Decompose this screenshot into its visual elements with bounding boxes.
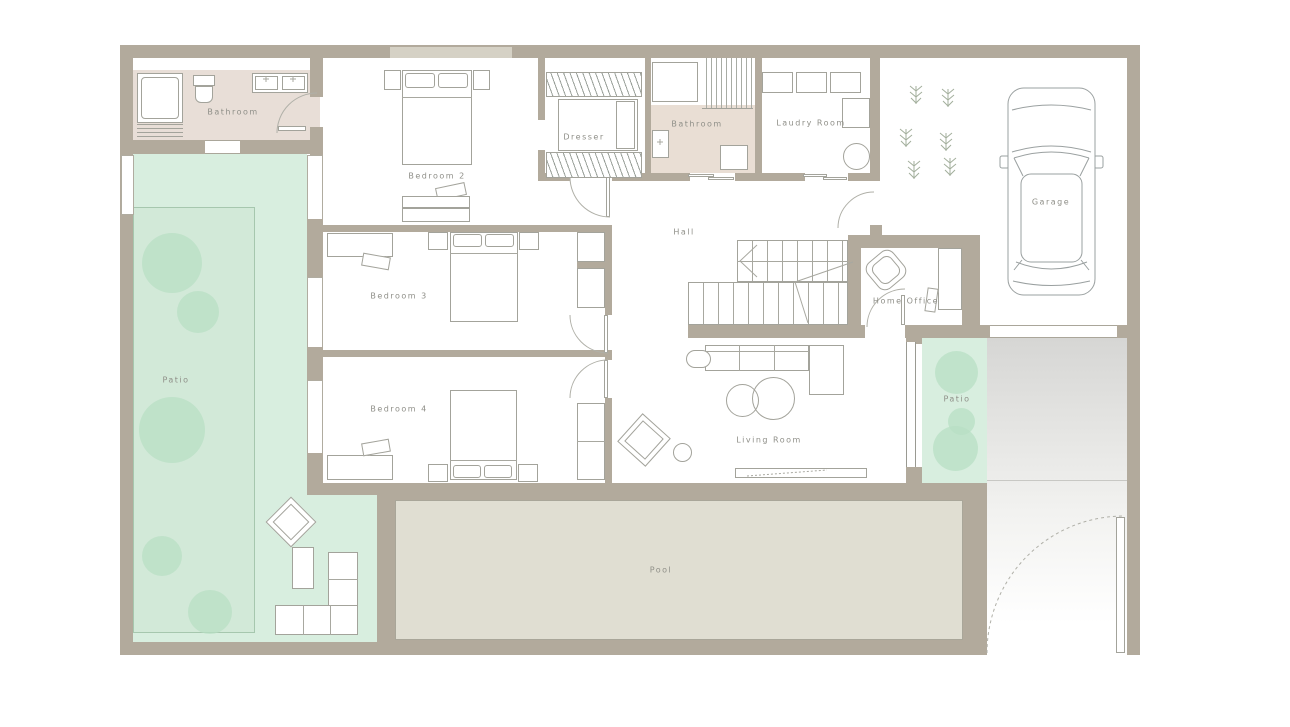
sofa-divider bbox=[328, 579, 358, 580]
room-label-laundry-room: Laudry Room bbox=[776, 119, 845, 128]
sofa-back-line bbox=[705, 351, 809, 352]
tree-icon bbox=[142, 536, 182, 576]
room-label-bedroom-4: Bedroom 4 bbox=[370, 405, 427, 414]
wall bbox=[307, 225, 612, 232]
room-label-garage: Garage bbox=[1032, 198, 1070, 207]
closet-rack bbox=[546, 152, 642, 178]
sofa-divider bbox=[330, 605, 331, 635]
plant-icon bbox=[900, 86, 956, 179]
pillow bbox=[438, 73, 468, 88]
toilet bbox=[193, 75, 215, 86]
nightstand bbox=[473, 70, 490, 90]
blanket-line bbox=[450, 460, 517, 461]
glass-sliding-wall bbox=[906, 342, 916, 467]
sink bbox=[255, 76, 278, 90]
sun-lounger bbox=[292, 547, 314, 589]
wall bbox=[605, 232, 612, 315]
wall bbox=[605, 398, 612, 483]
lounge-chair bbox=[264, 495, 318, 549]
pillow bbox=[484, 465, 512, 478]
door-swing-arc bbox=[570, 177, 610, 217]
pillow bbox=[485, 234, 514, 247]
tree-icon bbox=[139, 397, 205, 463]
driveway-edge-line bbox=[987, 480, 1127, 481]
car-icon bbox=[1000, 88, 1103, 295]
wall bbox=[1127, 58, 1140, 655]
door-leaf bbox=[604, 360, 608, 398]
door-swing-arc bbox=[838, 192, 874, 228]
wall bbox=[870, 58, 880, 178]
blanket-line bbox=[450, 253, 518, 254]
closet-rack bbox=[546, 72, 642, 97]
sliding-door-panel bbox=[823, 177, 847, 180]
wall bbox=[120, 642, 987, 655]
closet-divider bbox=[577, 441, 605, 442]
cabinet bbox=[762, 72, 793, 93]
wall bbox=[310, 127, 323, 155]
room-label-hall: Hall bbox=[673, 228, 694, 237]
sofa-divider bbox=[303, 605, 304, 635]
door-leaf bbox=[604, 315, 608, 353]
room-label-living-room: Living Room bbox=[736, 436, 802, 445]
door-swing-arc bbox=[570, 315, 608, 353]
desk bbox=[327, 455, 393, 480]
tree-icon bbox=[142, 233, 202, 293]
coffee-table bbox=[726, 384, 759, 417]
door-leaf bbox=[278, 126, 306, 131]
tree-icon bbox=[935, 351, 978, 394]
door-leaf bbox=[606, 177, 610, 217]
nightstand bbox=[428, 464, 448, 482]
wall bbox=[905, 325, 990, 338]
nightstand bbox=[428, 232, 448, 250]
wall bbox=[120, 58, 133, 655]
wall bbox=[120, 45, 1140, 58]
wall bbox=[133, 140, 205, 154]
sofa-divider bbox=[774, 345, 775, 371]
desk bbox=[938, 248, 962, 310]
side-table bbox=[686, 350, 711, 368]
wall bbox=[755, 58, 762, 181]
window-band bbox=[390, 47, 512, 58]
blanket-line bbox=[402, 97, 472, 98]
bedroom2-window bbox=[307, 155, 323, 221]
nightstand bbox=[519, 232, 539, 250]
sink bbox=[282, 76, 305, 90]
closet bbox=[577, 268, 605, 308]
wall bbox=[848, 173, 880, 181]
wall bbox=[861, 325, 865, 338]
wall bbox=[307, 453, 323, 483]
pillow bbox=[453, 234, 482, 247]
floor-plan: Bathroom Bedroom 2 Dresser Bathroom Laud… bbox=[0, 0, 1290, 727]
wall bbox=[962, 248, 980, 325]
washer bbox=[842, 98, 870, 128]
armchair bbox=[618, 414, 670, 466]
wall bbox=[735, 173, 805, 181]
side-table bbox=[673, 443, 692, 462]
toilet bbox=[720, 145, 748, 170]
cabinet bbox=[830, 72, 861, 93]
closet bbox=[577, 232, 605, 262]
door-swing-arc bbox=[867, 289, 905, 327]
sofa bbox=[705, 345, 809, 371]
pillow bbox=[453, 465, 481, 478]
bench bbox=[402, 196, 470, 208]
wall bbox=[240, 140, 320, 154]
room-label-bathroom-2: Bathroom bbox=[671, 120, 722, 129]
tree-icon bbox=[933, 426, 978, 471]
room-label-pool: Pool bbox=[650, 566, 673, 575]
bath-steps bbox=[137, 124, 183, 139]
bedroom4-window bbox=[307, 380, 323, 455]
wall bbox=[906, 467, 922, 483]
pool-water bbox=[395, 500, 963, 640]
door-swing-arc bbox=[570, 360, 608, 398]
wall bbox=[307, 350, 612, 357]
room-label-bedroom-3: Bedroom 3 bbox=[370, 292, 427, 301]
wall bbox=[688, 325, 861, 338]
driveway-area bbox=[987, 338, 1127, 655]
gate-leaf bbox=[1116, 517, 1125, 653]
wall bbox=[310, 58, 323, 97]
dresser-island-top bbox=[616, 101, 635, 149]
shelf bbox=[652, 62, 698, 102]
room-label-patio-right: Patio bbox=[943, 395, 970, 404]
pillow bbox=[405, 73, 435, 88]
room-label-bathroom-1: Bathroom bbox=[207, 108, 258, 117]
outdoor-sofa-section bbox=[275, 605, 358, 635]
garage-door-opening bbox=[990, 325, 1117, 338]
dryer bbox=[843, 143, 870, 170]
tree-icon bbox=[188, 590, 232, 634]
staircase-lower-flight bbox=[688, 282, 848, 325]
room-label-bedroom-2: Bedroom 2 bbox=[408, 172, 465, 181]
bathtub-basin bbox=[141, 77, 179, 119]
chair bbox=[361, 439, 391, 457]
nightstand bbox=[518, 464, 538, 482]
wall bbox=[538, 150, 545, 181]
bench bbox=[402, 208, 470, 222]
room-label-home-office: Home Office bbox=[873, 297, 939, 306]
office-chair bbox=[866, 250, 908, 292]
tv-console bbox=[735, 468, 867, 478]
nightstand bbox=[384, 70, 401, 90]
sink bbox=[652, 130, 669, 158]
cabinet bbox=[796, 72, 827, 93]
wall bbox=[307, 483, 987, 495]
wall bbox=[1117, 325, 1127, 338]
wall bbox=[848, 235, 861, 338]
bedroom3-window bbox=[307, 277, 323, 349]
wall bbox=[848, 235, 980, 248]
desk bbox=[327, 233, 393, 257]
staircase-midline bbox=[737, 261, 848, 262]
shower bbox=[702, 58, 753, 109]
bathroom1-window bbox=[205, 140, 240, 154]
sofa-divider bbox=[739, 345, 740, 371]
toilet-bowl bbox=[195, 86, 213, 103]
sliding-door-panel bbox=[708, 177, 734, 180]
tree-icon bbox=[177, 291, 219, 333]
wall bbox=[645, 58, 651, 181]
wall bbox=[307, 232, 323, 277]
room-label-dresser: Dresser bbox=[563, 133, 604, 142]
sofa-chaise bbox=[809, 345, 844, 395]
room-label-patio-left: Patio bbox=[162, 376, 189, 385]
exterior-window bbox=[121, 155, 134, 215]
wall bbox=[538, 58, 545, 120]
